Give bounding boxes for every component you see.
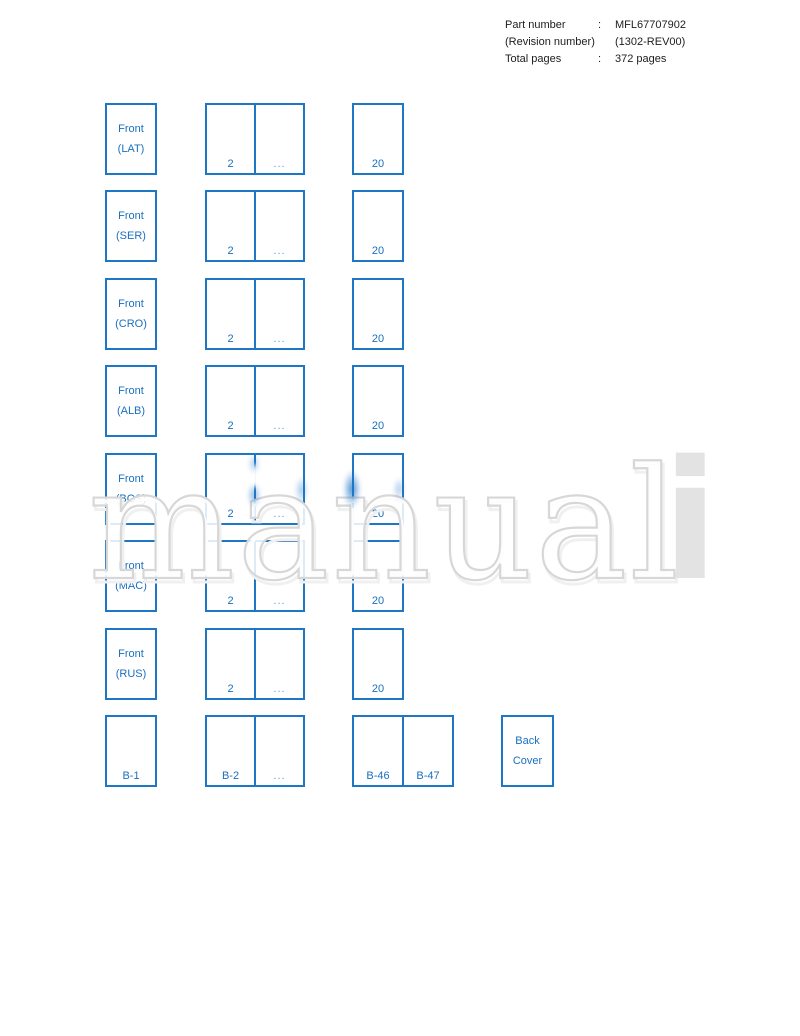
last-page-box-lat: 20: [352, 103, 404, 175]
spread-left-page: 2: [207, 630, 254, 698]
spread-left-page: 2: [207, 367, 254, 435]
front-cover-box-bos: Front (BOS): [105, 453, 157, 525]
spread-row-ser: Front (SER) 2 ... 20: [0, 190, 800, 262]
ellipsis-label: ...: [256, 333, 303, 345]
cover-line1: Front: [118, 556, 144, 576]
last-page-box-rus: 20: [352, 628, 404, 700]
ellipsis-label: ...: [256, 770, 303, 782]
total-pages-label: Total pages: [505, 51, 598, 68]
spread-pages-box-alb: 2 ...: [205, 365, 305, 437]
cover-line2: (CRO): [115, 314, 147, 334]
spread-right-page: ...: [254, 105, 303, 173]
spread-row-alb: Front (ALB) 2 ... 20: [0, 365, 800, 437]
front-cover-label: Front (MAC): [107, 542, 155, 610]
front-cover-label: Front (CRO): [107, 280, 155, 348]
page-number: 2: [207, 683, 254, 695]
front-cover-box-mac: Front (MAC): [105, 540, 157, 612]
spread-left-page: B-2: [207, 717, 254, 785]
front-cover-box-cro: Front (CRO): [105, 278, 157, 350]
page-number: 2: [207, 508, 254, 520]
cover-line2: (RUS): [116, 664, 147, 684]
cover-line2: (BOS): [116, 489, 147, 509]
page-number: 2: [207, 595, 254, 607]
spread-left-page: B-46: [354, 717, 402, 785]
page-number: B-47: [404, 770, 452, 782]
spread-left-page: 2: [207, 192, 254, 260]
page-number: B-1: [107, 770, 155, 782]
cover-line2: Cover: [513, 751, 542, 771]
page-number: 20: [354, 158, 402, 170]
last-page-box-ser: 20: [352, 190, 404, 262]
spread-row-rus: Front (RUS) 2 ... 20: [0, 628, 800, 700]
last-page-box-alb: 20: [352, 365, 404, 437]
cover-line1: Front: [118, 206, 144, 226]
revision-number-value: (1302-REV00): [615, 34, 685, 51]
ellipsis-label: ...: [256, 683, 303, 695]
cover-line1: Front: [118, 294, 144, 314]
back-pages-row: B-1 B-2 ... B-46 B-47 Back Cover: [0, 715, 800, 787]
final-spread-box: B-46 B-47: [352, 715, 454, 787]
spread-right-page: ...: [254, 717, 303, 785]
spread-right-page: ...: [254, 455, 303, 523]
cover-line1: Front: [118, 644, 144, 664]
spread-right-page: ...: [254, 367, 303, 435]
revision-number-label: (Revision number): [505, 34, 598, 51]
front-cover-label: Front (BOS): [107, 455, 155, 523]
spread-right-page: ...: [254, 542, 303, 610]
revision-number-row: (Revision number) (1302-REV00): [505, 34, 686, 51]
page-number: B-46: [354, 770, 402, 782]
cover-line1: Front: [118, 469, 144, 489]
front-cover-box-lat: Front (LAT): [105, 103, 157, 175]
spread-row-mac: Front (MAC) 2 ... 20: [0, 540, 800, 612]
back-spread-box: B-2 ...: [205, 715, 305, 787]
spread-row-lat: Front (LAT) 2 ... 20: [0, 103, 800, 175]
front-cover-label: Front (RUS): [107, 630, 155, 698]
cover-line2: (MAC): [115, 576, 147, 596]
spread-pages-box-ser: 2 ...: [205, 190, 305, 262]
part-number-value: MFL67707902: [615, 17, 686, 34]
separator-colon: :: [598, 51, 615, 68]
separator-blank: [598, 34, 615, 51]
document-page: Part number : MFL67707902 (Revision numb…: [0, 0, 800, 1036]
total-pages-row: Total pages : 372 pages: [505, 51, 686, 68]
spread-pages-box-cro: 2 ...: [205, 278, 305, 350]
spread-pages-box-bos: 2 ...: [205, 453, 305, 525]
spread-right-page: ...: [254, 192, 303, 260]
page-number: 2: [207, 245, 254, 257]
page-number: 2: [207, 333, 254, 345]
page-number: 20: [354, 420, 402, 432]
ellipsis-label: ...: [256, 595, 303, 607]
ellipsis-label: ...: [256, 158, 303, 170]
ellipsis-label: ...: [256, 420, 303, 432]
spread-row-cro: Front (CRO) 2 ... 20: [0, 278, 800, 350]
page-number: 20: [354, 595, 402, 607]
page-number: 20: [354, 245, 402, 257]
spread-pages-box-lat: 2 ...: [205, 103, 305, 175]
spread-right-page: ...: [254, 280, 303, 348]
front-cover-label: Front (ALB): [107, 367, 155, 435]
spread-right-page: ...: [254, 630, 303, 698]
spread-left-page: 2: [207, 280, 254, 348]
page-number: B-2: [207, 770, 254, 782]
spread-pages-box-mac: 2 ...: [205, 540, 305, 612]
cover-line1: Front: [118, 119, 144, 139]
spread-left-page: 2: [207, 105, 254, 173]
b1-page-box: B-1: [105, 715, 157, 787]
front-cover-label: Front (LAT): [107, 105, 155, 173]
front-cover-box-alb: Front (ALB): [105, 365, 157, 437]
cover-line1: Front: [118, 381, 144, 401]
spread-left-page: 2: [207, 455, 254, 523]
back-cover-label: Back Cover: [503, 717, 552, 785]
page-number: 20: [354, 508, 402, 520]
last-page-box-mac: 20: [352, 540, 404, 612]
part-number-label: Part number: [505, 17, 598, 34]
page-number: 2: [207, 158, 254, 170]
last-page-box-cro: 20: [352, 278, 404, 350]
back-cover-box: Back Cover: [501, 715, 554, 787]
ellipsis-label: ...: [256, 245, 303, 257]
total-pages-value: 372 pages: [615, 51, 666, 68]
cover-line2: (SER): [116, 226, 146, 246]
spread-pages-box-rus: 2 ...: [205, 628, 305, 700]
front-cover-label: Front (SER): [107, 192, 155, 260]
spread-right-page: B-47: [402, 717, 452, 785]
spread-row-bos: Front (BOS) 2 ... 20: [0, 453, 800, 525]
cover-line2: (ALB): [117, 401, 145, 421]
page-number: 20: [354, 683, 402, 695]
page-number: 20: [354, 333, 402, 345]
cover-line2: (LAT): [118, 139, 145, 159]
page-number: 2: [207, 420, 254, 432]
ellipsis-label: ...: [256, 508, 303, 520]
separator-colon: :: [598, 17, 615, 34]
front-cover-box-ser: Front (SER): [105, 190, 157, 262]
document-info-header: Part number : MFL67707902 (Revision numb…: [505, 17, 686, 68]
cover-line1: Back: [515, 731, 539, 751]
last-page-box-bos: 20: [352, 453, 404, 525]
front-cover-box-rus: Front (RUS): [105, 628, 157, 700]
part-number-row: Part number : MFL67707902: [505, 17, 686, 34]
spread-left-page: 2: [207, 542, 254, 610]
